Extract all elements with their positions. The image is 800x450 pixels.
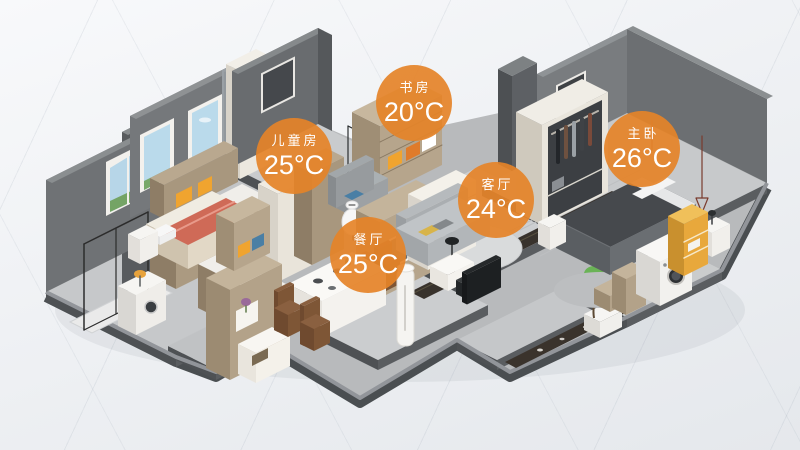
room-label: 客厅: [478, 178, 513, 191]
temp-badge-dining-room: 餐厅 25°C: [330, 217, 406, 293]
room-temperature: 20°C: [384, 99, 444, 126]
temp-badge-master-bedroom: 主卧 26°C: [604, 111, 680, 187]
room-label: 主卧: [624, 127, 659, 140]
temp-badge-living-room: 客厅 24°C: [458, 162, 534, 238]
room-label: 儿童房: [268, 134, 319, 147]
room-temperature: 26°C: [612, 145, 672, 172]
temp-badge-children-room: 儿童房 25°C: [256, 118, 332, 194]
room-temperature: 25°C: [338, 251, 398, 278]
temp-badge-study: 书房 20°C: [376, 65, 452, 141]
room-label: 书房: [396, 81, 431, 94]
room-temperature: 24°C: [466, 196, 526, 223]
smart-home-temperature-scene: 儿童房 25°C 书房 20°C 客厅 24°C 餐厅 25°C 主卧 26°C: [0, 0, 800, 450]
room-temperature: 25°C: [264, 152, 324, 179]
room-label: 餐厅: [350, 233, 385, 246]
